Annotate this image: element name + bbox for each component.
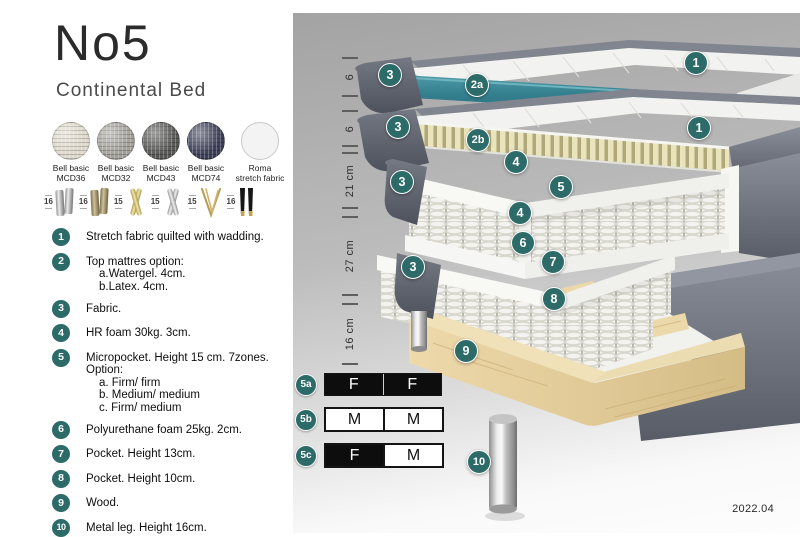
list-item: 5 Micropocket. Height 15 cm. 7zones. Opt… (52, 349, 292, 415)
list-item: 6 Polyurethane foam 25kg. 2cm. (52, 421, 292, 439)
firmness-table: 5a F F 5b M M 5c F M (295, 373, 444, 479)
callout-badge: 4 (508, 201, 532, 225)
leg-option: 15 (188, 186, 224, 218)
firmness-row-badge: 5b (295, 409, 317, 431)
item-text: Pocket. Height 10cm. (86, 473, 195, 486)
list-item: 1 Stretch fabric quilted with wadding. (52, 228, 292, 246)
list-item: 3 Fabric. (52, 300, 292, 318)
item-number-badge: 6 (52, 421, 70, 439)
callout-badge: 7 (541, 250, 565, 274)
measurement-label: 6 (344, 125, 356, 132)
item-text: Top mattres option: (86, 256, 186, 269)
fabric-name: Roma (249, 163, 272, 173)
list-item: 9 Wood. (52, 494, 292, 512)
bronze-cylinder-legs-icon (89, 186, 111, 218)
fabric-option: Romastretch fabric (239, 122, 281, 184)
leg-height: 15 (151, 198, 160, 206)
ruler-segment: 21 cm (337, 152, 363, 209)
callout-badge: 8 (542, 287, 566, 311)
item-number-badge: 3 (52, 300, 70, 318)
item-number-badge: 8 (52, 470, 70, 488)
measurement-label: 27 cm (344, 240, 356, 272)
item-text: Micropocket. Height 15 cm. 7zones. Optio… (86, 352, 292, 377)
page-title: No5 (54, 18, 152, 68)
list-item: 8 Pocket. Height 10cm. (52, 470, 292, 488)
callout-badge: 10 (467, 450, 491, 474)
silver-cross-legs-icon (161, 186, 185, 218)
fabric-option: Bell basicMCD74 (185, 122, 227, 184)
callout-badge: 6 (511, 231, 535, 255)
fabric-name: Bell basic (98, 163, 134, 173)
item-text: Polyurethane foam 25kg. 2cm. (86, 424, 242, 437)
chrome-cylinder-legs-icon (54, 186, 76, 218)
fabric-name: Bell basic (143, 163, 179, 173)
feature-list: 1 Stretch fabric quilted with wadding. 2… (52, 228, 292, 537)
list-item: 4 HR foam 30kg. 3cm. (52, 324, 292, 342)
ruler-segment: 6 (337, 110, 363, 147)
item-number-badge: 9 (52, 494, 70, 512)
item-subtext: a. Firm/ firm (99, 377, 292, 390)
page-subtitle: Continental Bed (56, 80, 206, 102)
gold-cross-legs-icon (124, 186, 148, 218)
firmness-row: 5b M M (295, 407, 444, 432)
leg-height: 16 (79, 198, 88, 206)
item-text: HR foam 30kg. 3cm. (86, 327, 191, 340)
callout-badge: 4 (504, 150, 528, 174)
item-subtext: a.Watergel. 4cm. (99, 268, 186, 281)
black-brass-legs-icon (236, 186, 256, 218)
firmness-row-badge: 5c (295, 445, 317, 467)
callout-badge: 3 (386, 115, 410, 139)
item-number-badge: 4 (52, 324, 70, 342)
fabric-code: MCD74 (192, 173, 221, 183)
fabric-swatch (97, 122, 135, 160)
fabric-option: Bell basicMCD43 (140, 122, 182, 184)
item-text: Pocket. Height 13cm. (86, 448, 195, 461)
callout-badge: 3 (401, 255, 425, 279)
leg-option: 16 (227, 186, 257, 218)
fabric-code: MCD43 (147, 173, 176, 183)
leg-option: 15 (151, 186, 185, 218)
firmness-cell: F (383, 374, 442, 395)
item-number-badge: 10 (52, 519, 70, 537)
ruler-segment: 27 cm (337, 216, 363, 296)
callout-badge: 9 (454, 339, 478, 363)
item-text: Fabric. (86, 303, 121, 316)
item-number-badge: 2 (52, 253, 70, 271)
leg-height: 16 (227, 198, 236, 206)
item-text: Metal leg. Height 16cm. (86, 522, 207, 535)
firmness-cell: F (325, 374, 383, 395)
item-number-badge: 7 (52, 445, 70, 463)
fabric-swatch (52, 122, 90, 160)
firmness-cell: M (326, 409, 383, 430)
callout-badge: 1 (687, 116, 711, 140)
fabric-code: MCD36 (57, 173, 86, 183)
leg-height: 16 (44, 198, 53, 206)
fabric-option: Bell basicMCD36 (50, 122, 92, 184)
fabric-name: Bell basic (188, 163, 224, 173)
callout-badge: 2a (465, 73, 489, 97)
ruler-segment: 16 cm (337, 303, 363, 365)
item-subtext: c. Firm/ medium (99, 402, 292, 415)
fabric-swatch (142, 122, 180, 160)
spec-panel: No5 Continental Bed Bell basicMCD36 Bell… (0, 0, 293, 533)
list-item: 2 Top mattres option: a.Watergel. 4cm. b… (52, 253, 292, 294)
hairpin-legs-icon (198, 186, 224, 218)
measurement-label: 16 cm (344, 318, 356, 350)
item-number-badge: 5 (52, 349, 70, 367)
leg-height: 15 (114, 198, 123, 206)
layer-micropocket (385, 153, 800, 279)
leg-options: 16 16 15 15 (44, 186, 256, 218)
fabric-swatches: Bell basicMCD36 Bell basicMCD32 Bell bas… (50, 122, 281, 184)
firmness-cell: F (326, 445, 383, 466)
firmness-row-badge: 5a (295, 374, 317, 396)
list-item: 10 Metal leg. Height 16cm. (52, 519, 292, 537)
fabric-code: stretch fabric (236, 173, 285, 183)
callout-badge: 5 (549, 175, 573, 199)
fabric-code: MCD32 (102, 173, 131, 183)
callout-badge: 1 (684, 51, 708, 75)
item-subtext: b. Medium/ medium (99, 389, 292, 402)
item-text: Stretch fabric quilted with wadding. (86, 231, 264, 244)
leg-option: 16 (44, 186, 76, 218)
fabric-swatch (187, 122, 225, 160)
callout-badge: 3 (390, 170, 414, 194)
callout-badge: 3 (378, 63, 402, 87)
list-item: 7 Pocket. Height 13cm. (52, 445, 292, 463)
firmness-row: 5a F F (295, 373, 444, 396)
leg-option: 15 (114, 186, 148, 218)
firmness-cell: M (383, 409, 442, 430)
diagram-panel: 6 6 21 cm 27 cm 16 cm 1 3 2a 3 2b 1 4 5 … (293, 13, 800, 533)
fabric-swatch (241, 122, 279, 160)
version-stamp: 2022.04 (732, 503, 774, 515)
item-subtext: b.Latex. 4cm. (99, 281, 186, 294)
fabric-name: Bell basic (53, 163, 89, 173)
firmness-cell: M (383, 445, 442, 466)
measurement-label: 6 (344, 74, 356, 81)
firmness-row: 5c F M (295, 443, 444, 468)
ruler-segment: 6 (337, 57, 363, 97)
fabric-option: Bell basicMCD32 (95, 122, 137, 184)
measurement-label: 21 cm (344, 164, 356, 196)
leg-option: 16 (79, 186, 111, 218)
callout-badge: 2b (466, 128, 490, 152)
leg-height: 15 (188, 198, 197, 206)
item-number-badge: 1 (52, 228, 70, 246)
item-text: Wood. (86, 497, 119, 510)
